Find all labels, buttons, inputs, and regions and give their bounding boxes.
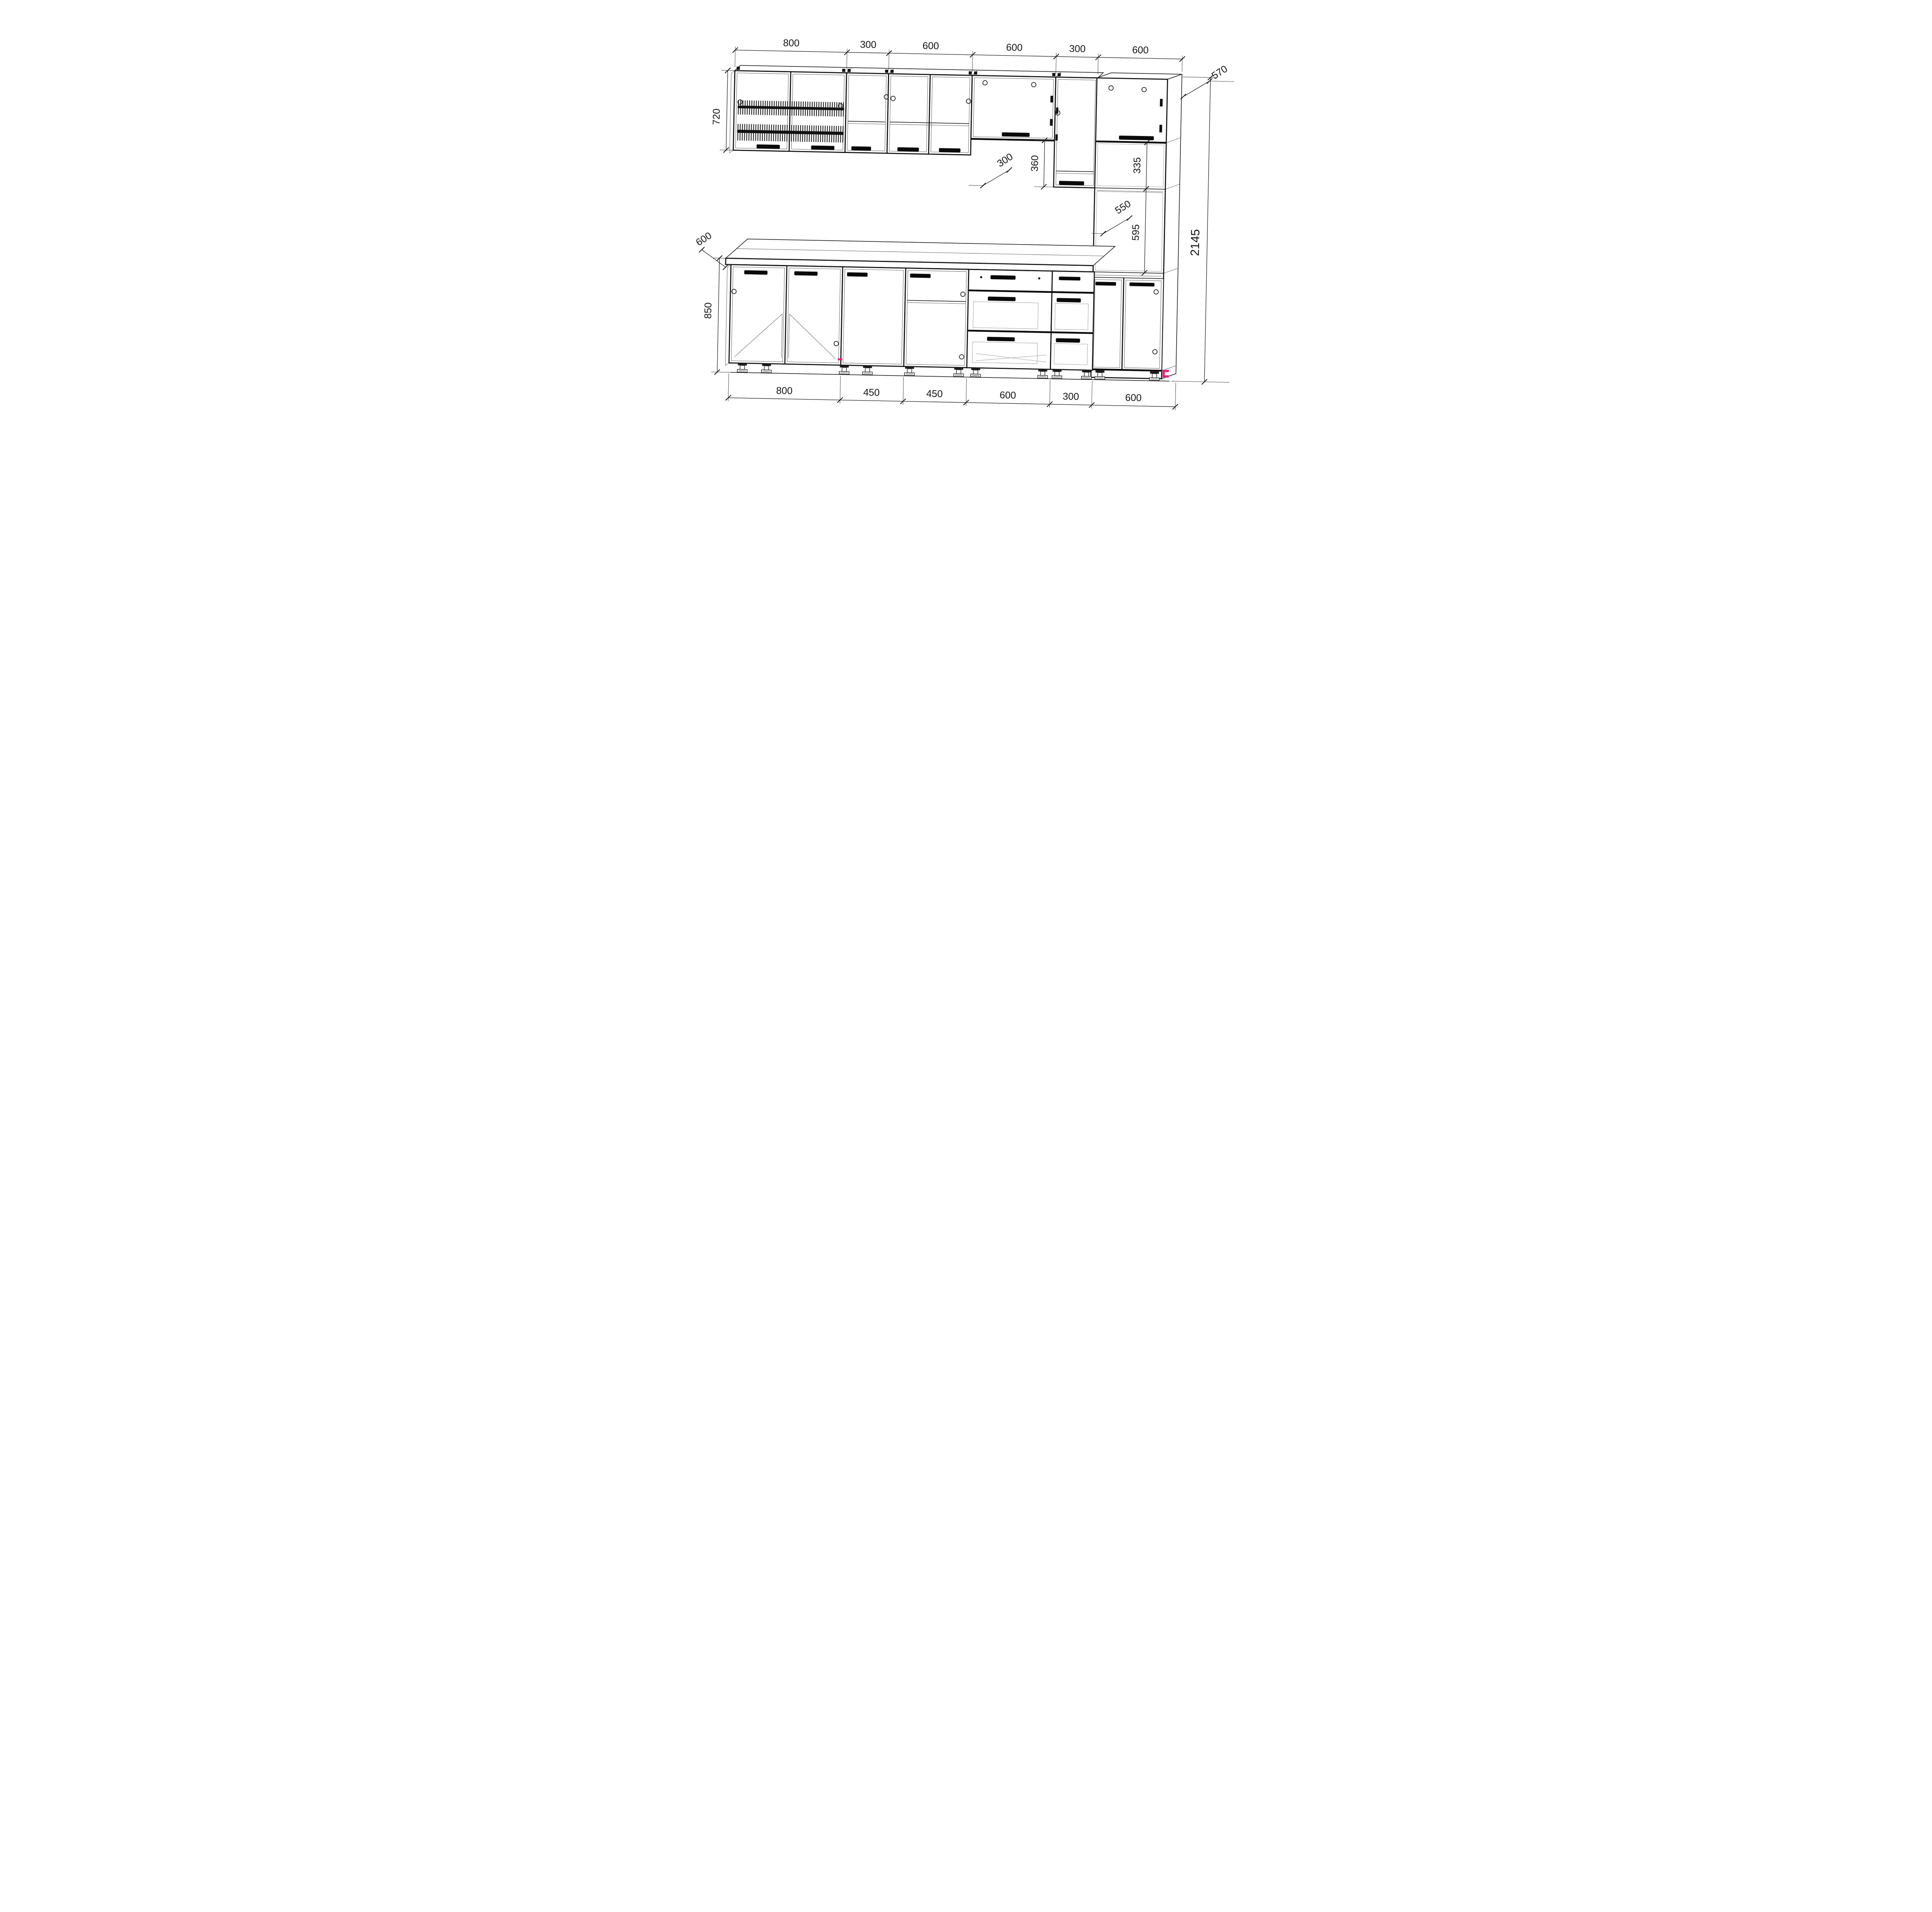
dim-worktop-depth-600: 600 <box>696 230 729 270</box>
dim-top-600b-label: 600 <box>1006 42 1023 53</box>
dim-2145-label: 2145 <box>1188 229 1202 256</box>
assembly-drawing: 800 300 600 600 300 600 570 720 600 <box>696 0 1236 442</box>
dim-300-depth-label: 300 <box>995 151 1015 169</box>
assembly-drawing-page: 800 300 600 600 300 600 570 720 600 <box>696 0 1236 442</box>
dim-335-label: 335 <box>1132 157 1143 174</box>
dim-top-600a-label: 600 <box>922 41 939 52</box>
upper-cabinet-800-dish-rack <box>730 71 847 155</box>
tall-base-doors <box>1091 277 1164 371</box>
upper-cabinet-600-double <box>887 74 972 155</box>
base-cabinet-450-door <box>838 267 906 366</box>
dim-bottom-600b-label: 600 <box>1125 392 1142 403</box>
dim-top-300b-label: 300 <box>1069 43 1086 54</box>
upper-cabinet-300-low <box>1054 77 1098 188</box>
base-drawer-unit-600 <box>967 269 1052 369</box>
dim-360-label: 360 <box>1029 155 1041 172</box>
upper-cabinet-600-flip <box>971 75 1056 141</box>
dim-bottom-450b-label: 450 <box>926 388 943 399</box>
dim-bottom-row: 800 450 450 600 300 600 <box>726 374 1179 410</box>
dim-600-depth-label: 600 <box>696 230 714 248</box>
dim-flip-gap-360: 360 <box>1029 138 1054 190</box>
dim-bottom-450a-label: 450 <box>863 387 880 398</box>
dim-tall-depth-570: 570 <box>1180 63 1235 100</box>
base-cabinet-450-shelf <box>904 268 969 368</box>
dim-upper-depth-300: 300 <box>969 150 1015 189</box>
dim-top-600c-label: 600 <box>1132 44 1149 56</box>
accent-mark <box>838 359 842 360</box>
upper-cabinet-300 <box>845 73 889 153</box>
dim-570-label: 570 <box>1210 63 1230 82</box>
base-cabinet-800 <box>725 265 843 368</box>
dim-bottom-800-label: 800 <box>776 385 793 396</box>
dim-bottom-300-label: 300 <box>1063 391 1079 402</box>
dim-top-300-label: 300 <box>860 39 876 50</box>
dim-720-label: 720 <box>711 109 722 125</box>
dim-595-label: 595 <box>1130 224 1141 241</box>
base-drawer-unit-300 <box>1050 271 1094 371</box>
dim-bottom-600a-label: 600 <box>1000 390 1016 401</box>
dim-top-800-label: 800 <box>783 37 799 49</box>
dim-850-label: 850 <box>702 303 714 319</box>
